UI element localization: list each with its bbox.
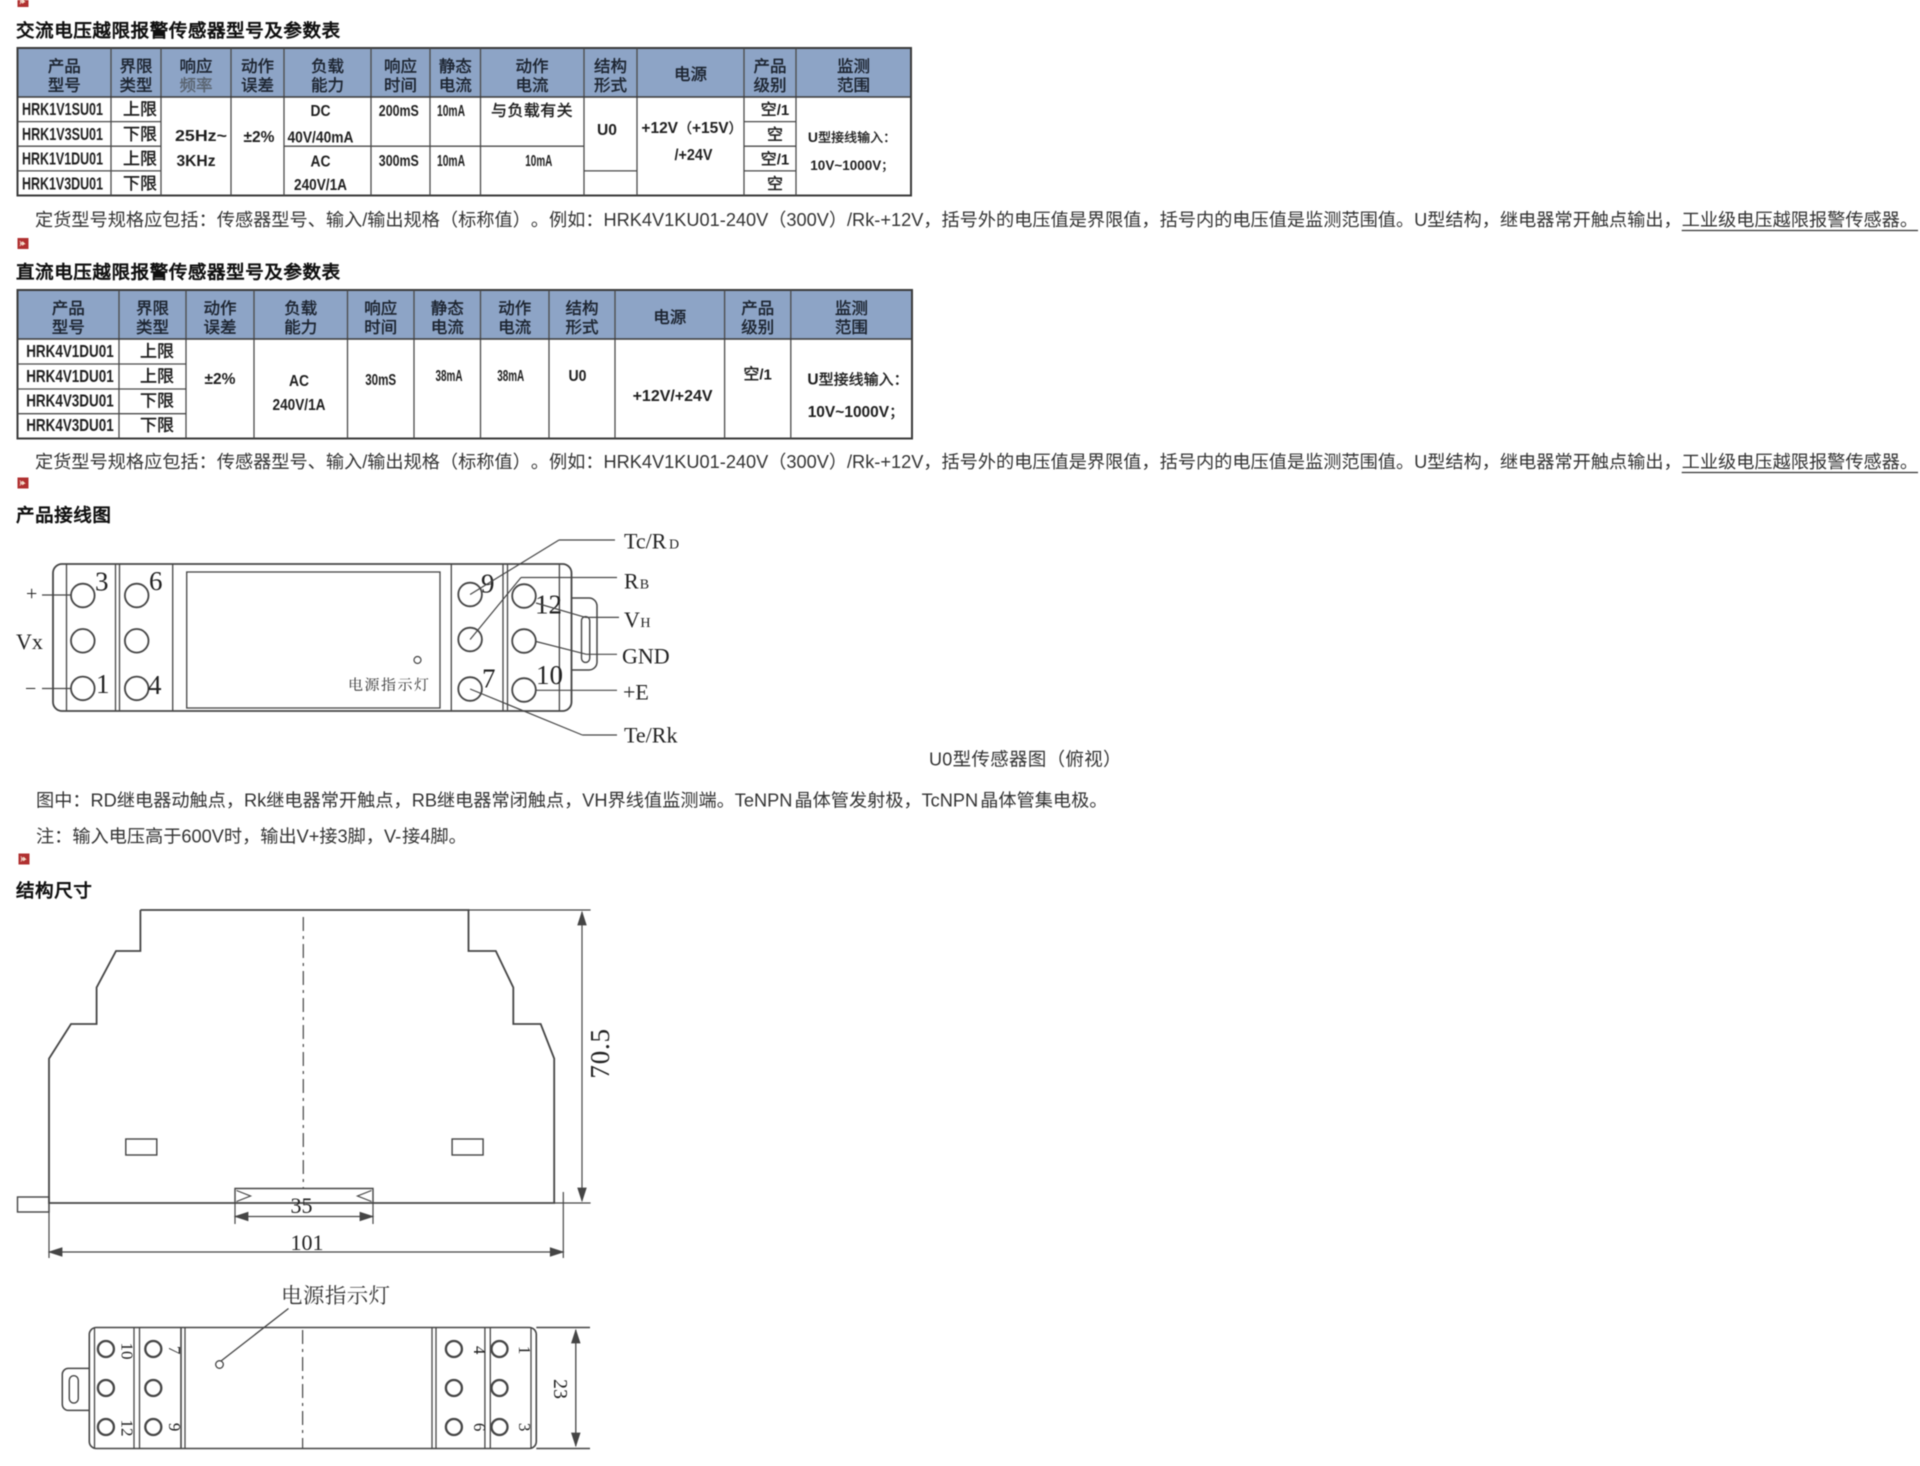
svg-text:R: R (624, 569, 639, 594)
svg-text:40V/40mA: 40V/40mA (288, 130, 354, 147)
svg-text:/Rk-+12V: /Rk-+12V (847, 452, 924, 472)
svg-text:Tc/R: Tc/R (624, 529, 667, 554)
svg-text:+15V: +15V (692, 120, 729, 137)
svg-text:HRK4V3DU01: HRK4V3DU01 (26, 415, 114, 435)
svg-text:38mA: 38mA (497, 368, 524, 385)
svg-text:+12V/+24V: +12V/+24V (633, 388, 713, 405)
svg-text:/Rk-+12V: /Rk-+12V (847, 210, 924, 230)
svg-text:DC: DC (311, 103, 331, 120)
svg-text:70.5: 70.5 (585, 1028, 615, 1078)
svg-text:V+: V+ (297, 827, 320, 847)
svg-text:Te/Rk: Te/Rk (624, 723, 677, 748)
svg-text:25Hz~: 25Hz~ (175, 128, 227, 145)
svg-text:10: 10 (118, 1343, 137, 1360)
svg-text:B: B (640, 578, 649, 593)
svg-text:U0: U0 (569, 368, 587, 385)
svg-text:+12V: +12V (641, 120, 678, 137)
svg-text:12: 12 (118, 1420, 137, 1437)
svg-text:AC: AC (311, 154, 331, 171)
svg-text:HRK4V3DU01: HRK4V3DU01 (26, 391, 114, 411)
svg-text:7: 7 (165, 1346, 184, 1355)
svg-text:TeNPN: TeNPN (735, 791, 793, 811)
svg-text:V: V (624, 607, 640, 632)
svg-text:35: 35 (291, 1193, 313, 1218)
svg-text:6: 6 (470, 1423, 489, 1432)
svg-text:3KHz: 3KHz (177, 153, 216, 170)
svg-text:240V/1A: 240V/1A (273, 397, 326, 414)
svg-text:HRK4V1DU01: HRK4V1DU01 (26, 366, 114, 386)
svg-text:GND: GND (622, 644, 670, 669)
svg-text:/: / (362, 452, 368, 472)
svg-text:/+24V: /+24V (675, 147, 714, 164)
svg-text:±2%: ±2% (205, 371, 236, 388)
svg-text:1: 1 (515, 1346, 534, 1355)
svg-text:10: 10 (536, 660, 563, 690)
svg-text:HRK1V1SU01: HRK1V1SU01 (22, 99, 103, 119)
svg-text:U0: U0 (929, 750, 953, 770)
svg-text:V-: V- (384, 827, 401, 847)
svg-text:1: 1 (96, 669, 110, 699)
svg-text:6: 6 (149, 566, 163, 596)
svg-text:+E: +E (623, 680, 649, 705)
svg-text:HRK1V1DU01: HRK1V1DU01 (22, 149, 103, 169)
svg-text:TcNPN: TcNPN (922, 791, 979, 811)
svg-text:Rk: Rk (244, 791, 267, 811)
svg-text:−: − (25, 678, 36, 700)
svg-text:HRK4V1DU01: HRK4V1DU01 (26, 341, 114, 361)
svg-text:101: 101 (291, 1230, 324, 1255)
svg-text:U: U (1414, 452, 1427, 472)
svg-text:300mS: 300mS (379, 153, 419, 170)
svg-text:U: U (1414, 210, 1427, 230)
svg-text:4: 4 (148, 670, 162, 700)
svg-text:300V: 300V (786, 210, 829, 230)
svg-text:10mA: 10mA (437, 153, 465, 170)
svg-text:7: 7 (482, 664, 496, 694)
svg-text:RD: RD (91, 791, 117, 811)
svg-text:/1: /1 (759, 367, 772, 384)
svg-text:±2%: ±2% (244, 129, 275, 146)
svg-text:10mA: 10mA (525, 153, 552, 170)
svg-text:9: 9 (165, 1423, 184, 1432)
svg-text:+: + (26, 583, 37, 605)
svg-text:3: 3 (95, 567, 109, 597)
svg-text:U: U (807, 372, 818, 389)
svg-text:4: 4 (470, 1346, 489, 1355)
svg-text:D: D (669, 538, 679, 553)
svg-text:300V: 300V (786, 452, 829, 472)
svg-text:10V~1000V: 10V~1000V (808, 404, 890, 421)
svg-text:HRK1V3SU01: HRK1V3SU01 (22, 124, 103, 144)
svg-text:38mA: 38mA (436, 368, 463, 385)
svg-text:/1: /1 (777, 102, 790, 119)
svg-text:240V/1A: 240V/1A (294, 177, 347, 194)
svg-text:U0: U0 (597, 122, 617, 139)
svg-text:10mA: 10mA (437, 103, 465, 120)
svg-text:200mS: 200mS (379, 103, 419, 120)
svg-text:600V: 600V (181, 827, 224, 847)
svg-text:4: 4 (420, 827, 430, 847)
svg-text:VH: VH (582, 791, 607, 811)
svg-text:30mS: 30mS (365, 372, 396, 389)
svg-text:AC: AC (289, 373, 309, 390)
svg-text:Vx: Vx (16, 629, 43, 654)
svg-text:/1: /1 (777, 152, 790, 169)
svg-text:/: / (362, 210, 368, 230)
svg-text:3: 3 (338, 827, 348, 847)
svg-text:10V~1000V: 10V~1000V (810, 158, 881, 173)
svg-text:RB: RB (412, 791, 437, 811)
svg-text:3: 3 (515, 1423, 534, 1432)
svg-text:HRK1V3DU01: HRK1V3DU01 (22, 173, 103, 193)
svg-text:H: H (640, 616, 650, 631)
svg-text:23: 23 (549, 1379, 571, 1399)
svg-text:HRK4V1KU01-240V: HRK4V1KU01-240V (604, 452, 770, 472)
svg-text:U: U (808, 129, 818, 145)
svg-text:HRK4V1KU01-240V: HRK4V1KU01-240V (604, 210, 770, 230)
